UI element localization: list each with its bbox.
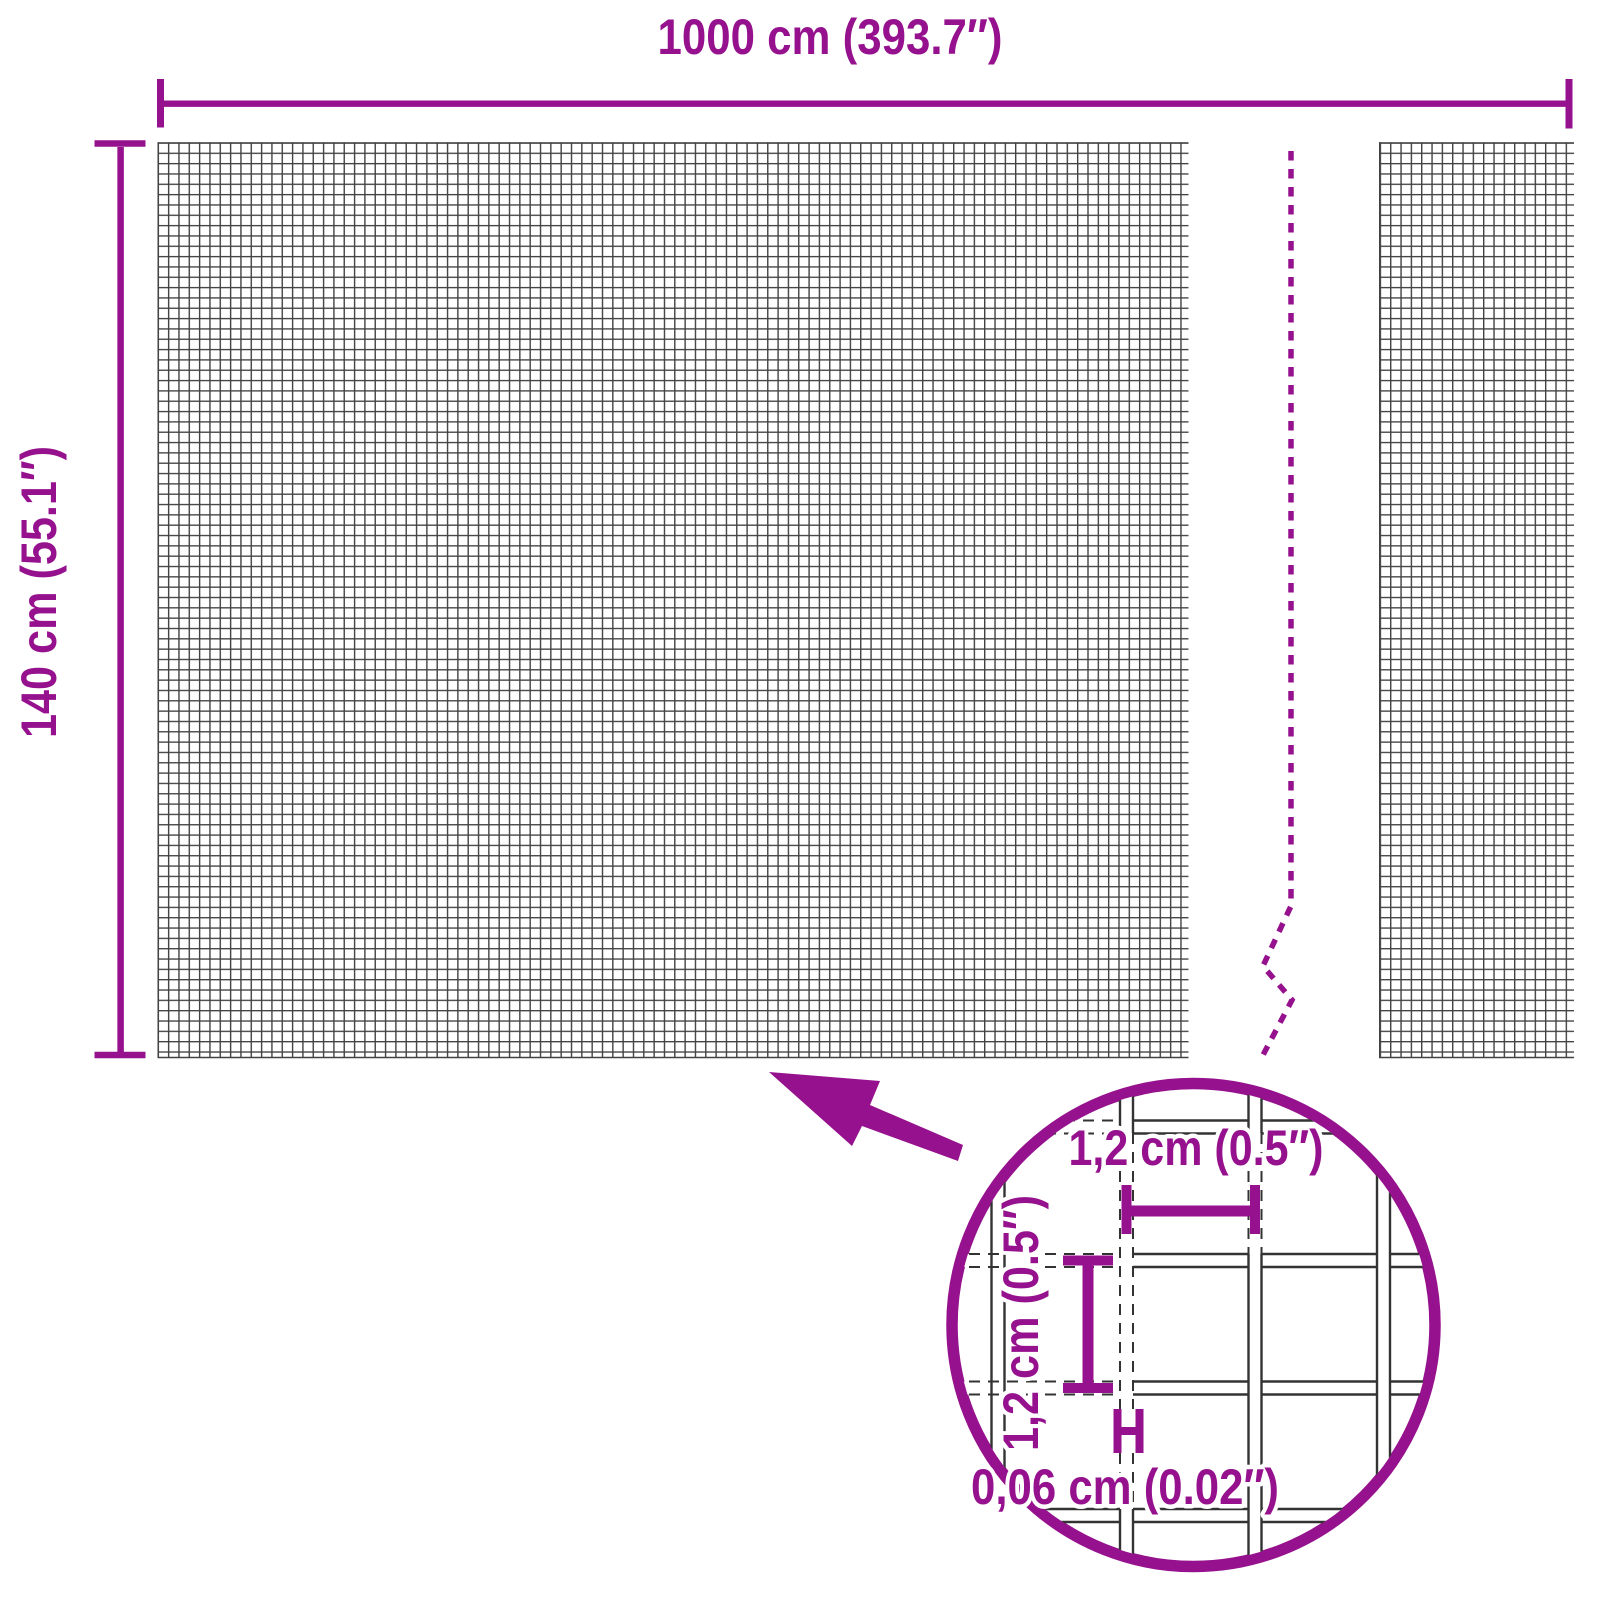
svg-text:140 cm (55.1″): 140 cm (55.1″) — [11, 446, 67, 738]
svg-text:1,2 cm (0.5″): 1,2 cm (0.5″) — [993, 1195, 1049, 1451]
svg-text:1000 cm (393.7″): 1000 cm (393.7″) — [658, 9, 1003, 65]
svg-text:0,06 cm (0.02″): 0,06 cm (0.02″) — [971, 1459, 1279, 1515]
svg-text:1,2 cm (0.5″): 1,2 cm (0.5″) — [1069, 1120, 1324, 1176]
